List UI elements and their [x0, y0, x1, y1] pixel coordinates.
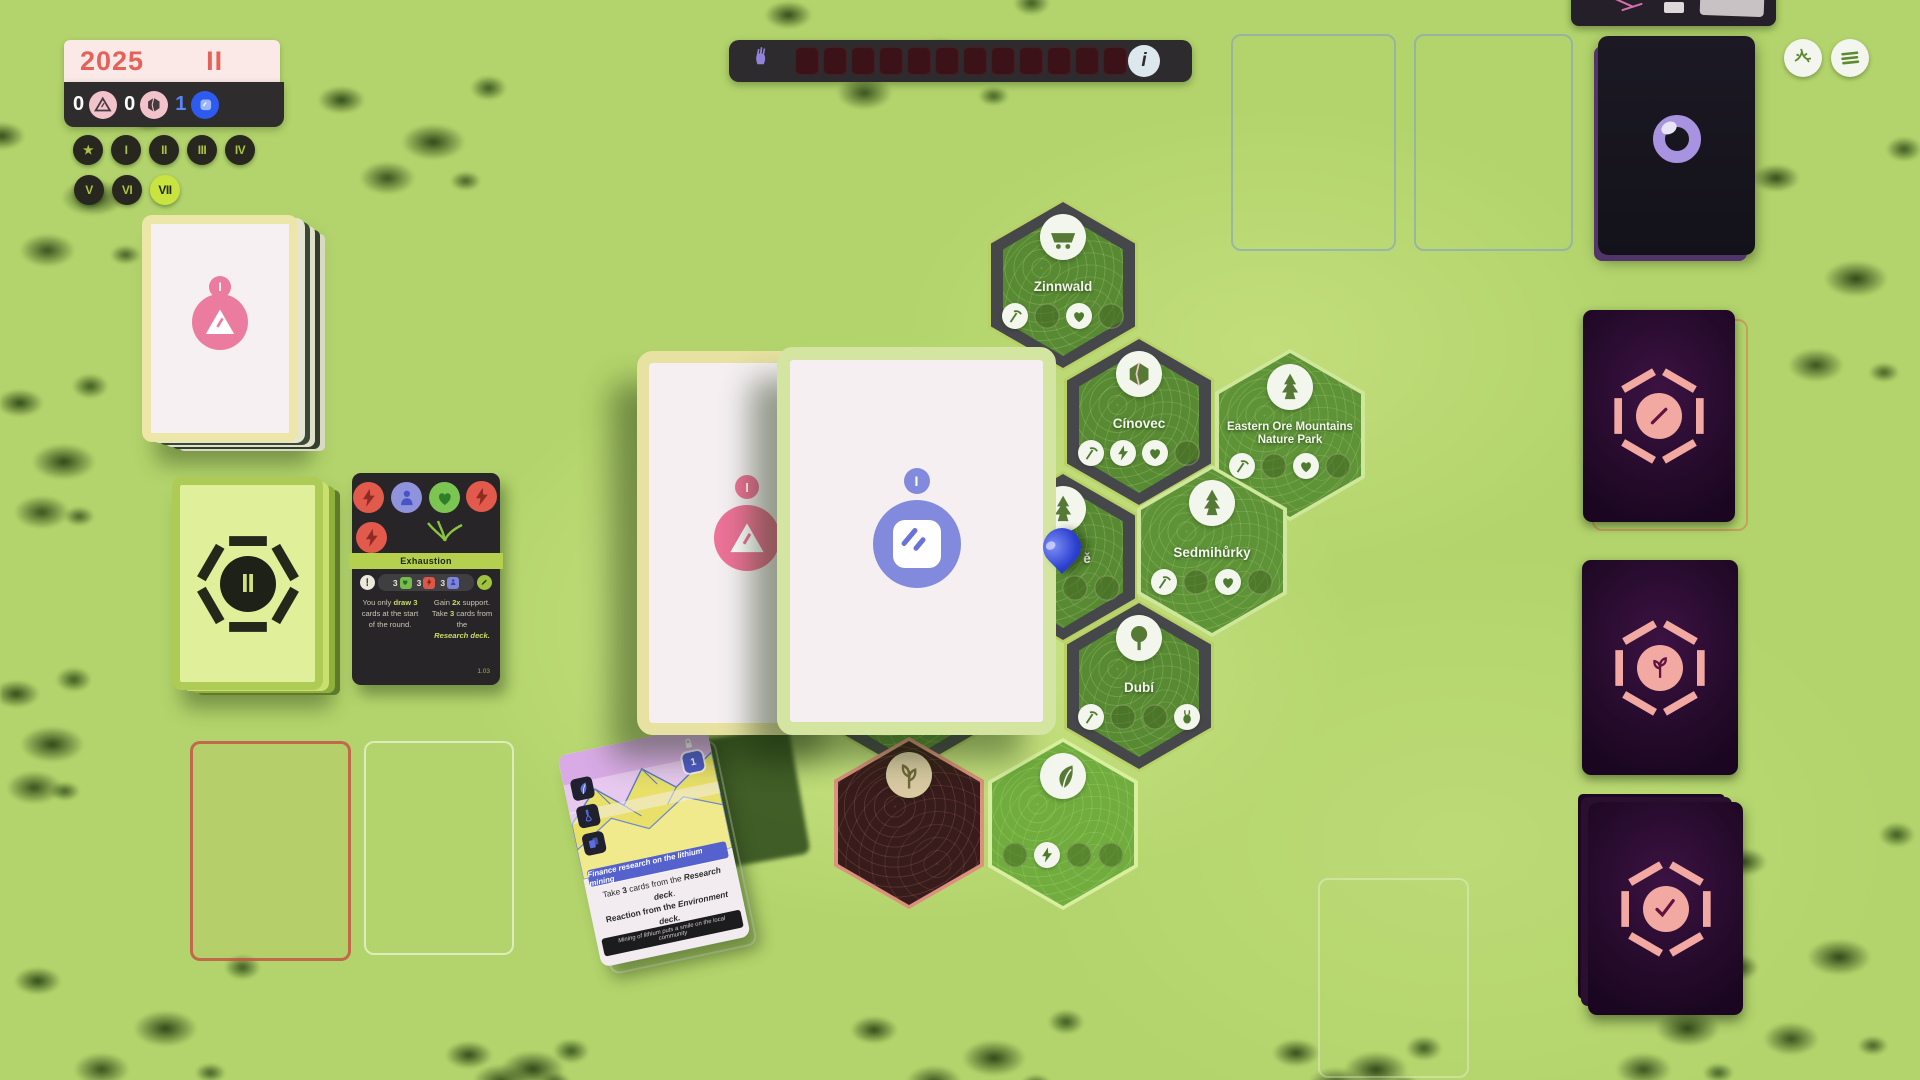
cost-icon [575, 803, 601, 829]
twig-icon [424, 517, 466, 543]
empty-slot [1174, 440, 1200, 466]
card-badge: I [904, 468, 930, 494]
resource-counters: 0 0 1 [64, 82, 284, 127]
pencil-icon [477, 575, 492, 590]
support-segment [823, 47, 847, 75]
lens-icon [1653, 115, 1701, 163]
hex-slots [1072, 704, 1206, 730]
counter-value: 0 [124, 93, 135, 116]
info-button[interactable]: i [1128, 45, 1160, 77]
lock-count: 1 [682, 750, 706, 774]
empty-card-slot[interactable] [1318, 878, 1469, 1078]
observe-deck[interactable] [1598, 36, 1755, 255]
game-logo-button[interactable] [1784, 39, 1822, 77]
foliage [820, 1000, 1120, 1080]
empty-card-slot[interactable] [1231, 34, 1396, 251]
support-segment [1075, 47, 1099, 75]
card-face-edge [1700, 0, 1765, 17]
heart-slot [1142, 440, 1168, 466]
cost-icon [581, 830, 607, 856]
pickaxe-slot [1078, 440, 1104, 466]
empty-slot [1098, 303, 1124, 329]
action-card-grow[interactable] [1582, 560, 1738, 775]
heart-slot [1293, 453, 1319, 479]
cost-item: 3 [440, 577, 459, 589]
crystal-counter: 0 [124, 91, 168, 119]
card-effect-left: You only draw 3 cards at the start of th… [358, 597, 422, 641]
round-label: II [206, 46, 223, 77]
empty-slot [1247, 569, 1273, 595]
hex-name: Sedmihůrky [1149, 545, 1275, 561]
phase-deck[interactable]: II [172, 477, 323, 690]
year-phase-panel: 2025 II [64, 40, 280, 82]
triangle-alert-icon [192, 294, 248, 350]
square-counter: 1 [175, 91, 219, 119]
empty-slot [1062, 575, 1088, 601]
card-title: Exhaustion [349, 553, 503, 569]
triangle-token-icon [89, 91, 117, 119]
square-token-icon [191, 91, 219, 119]
cost-row: 333 [360, 574, 492, 591]
support-segment [795, 47, 819, 75]
map-hex-meadow[interactable] [988, 738, 1138, 910]
check-icon [1643, 886, 1689, 932]
support-segment [963, 47, 987, 75]
menu-button[interactable] [1831, 39, 1869, 77]
phase-chip-★[interactable]: ★ [73, 135, 103, 165]
branches-icon [1791, 46, 1815, 70]
support-track: i [729, 40, 1192, 82]
map-hex-mined[interactable] [834, 737, 984, 909]
phase-chip-VI[interactable]: VI [112, 175, 142, 205]
pickaxe-slot [1002, 303, 1028, 329]
support-segment [991, 47, 1015, 75]
empty-slot [1110, 704, 1136, 730]
card-effect-right: Gain 2x support.Take 3 cards from the Re… [430, 597, 494, 641]
hand-card-active[interactable]: I [777, 347, 1056, 735]
support-segment [935, 47, 959, 75]
pine-tree-icon [1267, 364, 1313, 410]
empty-slot [1066, 842, 1092, 868]
exhaustion-card[interactable]: Exhaustion 333 You only draw 3 cards at … [352, 473, 500, 685]
pine-tree-icon [1189, 480, 1235, 526]
hex-slots [996, 303, 1130, 329]
dry-plant-icon [886, 752, 932, 798]
crystal-token-icon [140, 91, 168, 119]
foliage [440, 1040, 600, 1080]
triangle-counter: 0 [73, 91, 117, 119]
hex-name: Dubí [1076, 680, 1202, 696]
support-segments [795, 47, 1127, 75]
raised-fist-icon [749, 44, 781, 78]
rabbit-slot [1174, 704, 1200, 730]
heart-token-icon [429, 482, 460, 513]
counter-value: 1 [175, 93, 186, 116]
window-icon [873, 500, 961, 588]
support-segment [907, 47, 931, 75]
event-deck[interactable]: I [142, 215, 298, 442]
triangle-alert-icon [714, 505, 780, 571]
discard-slot[interactable] [190, 741, 351, 961]
card-code: 1.03 [477, 668, 490, 675]
year-label: 2025 [80, 46, 144, 77]
empty-slot [1183, 569, 1209, 595]
exclaim-icon [360, 575, 375, 590]
bolt-slot [1034, 842, 1060, 868]
bolt-slot [1110, 440, 1136, 466]
cost-item: 3 [393, 577, 412, 589]
game-board: Zinnwald Cínovec Eastern Ore Mountains N… [0, 0, 1920, 1080]
empty-slot [1034, 303, 1060, 329]
hex-slots [996, 842, 1130, 868]
person-token-icon [391, 482, 422, 513]
foliage [0, 340, 110, 550]
empty-slot [1098, 842, 1124, 868]
bolt-token-icon [356, 522, 387, 553]
phase-chip-IV[interactable]: IV [225, 135, 255, 165]
support-segment [1103, 47, 1127, 75]
support-segment [1047, 47, 1071, 75]
heart-slot [1066, 303, 1092, 329]
leaf-icon [1040, 753, 1086, 799]
empty-slot [1002, 842, 1028, 868]
hex-name: Eastern Ore Mountains Nature Park [1227, 421, 1353, 447]
lock-icon [680, 735, 697, 752]
cost-item: 3 [417, 577, 436, 589]
phase-numeral: II [220, 556, 276, 612]
action-card-confirm[interactable] [1588, 802, 1743, 1015]
phase-chip-VII[interactable]: VII [150, 175, 180, 205]
ore-crystal-icon [1116, 351, 1162, 397]
cost-pill: 333 [378, 574, 474, 591]
hex-name: Zinnwald [1000, 279, 1126, 295]
hex-slots [1072, 440, 1206, 466]
support-segment [851, 47, 875, 75]
support-segment [1019, 47, 1043, 75]
empty-slot [1094, 575, 1120, 601]
slash-icon [1636, 393, 1682, 439]
phase-chip-V[interactable]: V [74, 175, 104, 205]
empty-card-slot[interactable] [1414, 34, 1573, 251]
heart-slot [1215, 569, 1241, 595]
empty-card-slot[interactable] [364, 741, 514, 955]
empty-slot [1142, 704, 1168, 730]
action-card-mine[interactable] [1583, 310, 1735, 522]
pickaxe-slot [1078, 704, 1104, 730]
counter-value: 0 [73, 93, 84, 116]
support-segment [879, 47, 903, 75]
foliage [300, 55, 530, 205]
foliage [1740, 70, 1920, 430]
foliage [0, 640, 90, 820]
empty-slot [1325, 453, 1351, 479]
card-badge: I [735, 475, 759, 499]
mine-cart-icon [1040, 214, 1086, 260]
phase-chips-row2: VVIVII [74, 175, 180, 205]
phase-chip-II[interactable]: II [149, 135, 179, 165]
bolt-token-icon [466, 481, 497, 512]
hex-slots [1145, 569, 1279, 595]
phase-chips-row1: ★IIIIIIIV [73, 135, 255, 165]
sprout-icon [1637, 645, 1683, 691]
hex-name: Cínovec [1076, 416, 1202, 432]
pickaxe-slot [1151, 569, 1177, 595]
card-chip [1664, 2, 1684, 13]
bolt-token-icon [353, 482, 384, 513]
cost-icon [569, 776, 595, 802]
phase-chip-I[interactable]: I [111, 135, 141, 165]
phase-chip-III[interactable]: III [187, 135, 217, 165]
offscreen-card [1571, 0, 1776, 26]
menu-icon [1837, 45, 1863, 71]
oak-tree-icon [1116, 615, 1162, 661]
